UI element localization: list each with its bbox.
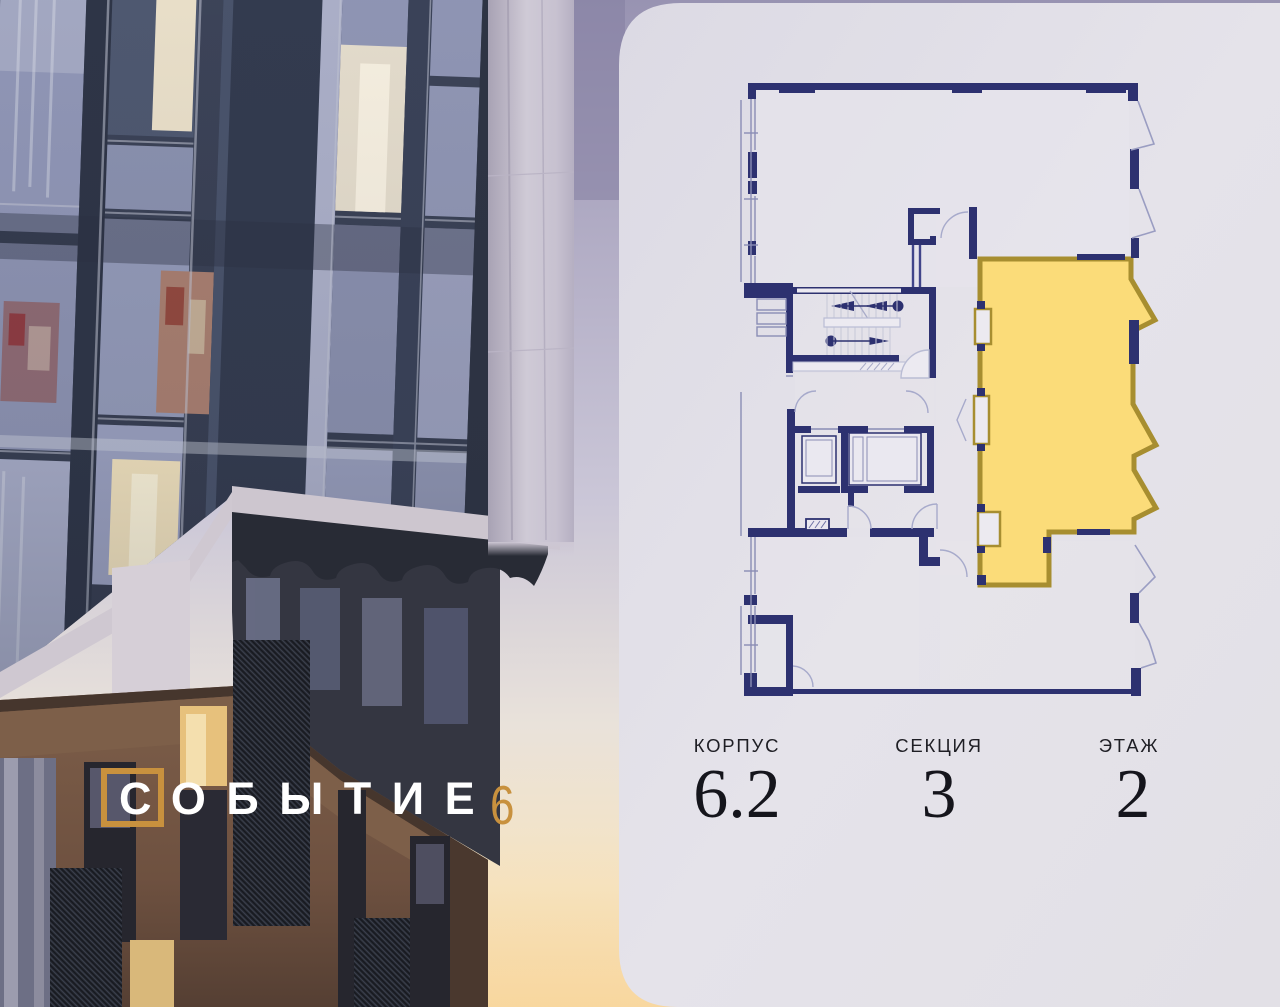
svg-text:2: 2 — [1116, 756, 1151, 833]
svg-text:6: 6 — [490, 774, 514, 836]
svg-text:6.2: 6.2 — [693, 756, 781, 833]
svg-text:КОРПУС: КОРПУС — [694, 735, 781, 756]
svg-text:ЭТАЖ: ЭТАЖ — [1099, 735, 1160, 756]
svg-text:СЕКЦИЯ: СЕКЦИЯ — [895, 735, 983, 756]
svg-text:3: 3 — [922, 756, 957, 833]
svg-text:СОБЫТИЕ: СОБЫТИЕ — [119, 773, 495, 824]
